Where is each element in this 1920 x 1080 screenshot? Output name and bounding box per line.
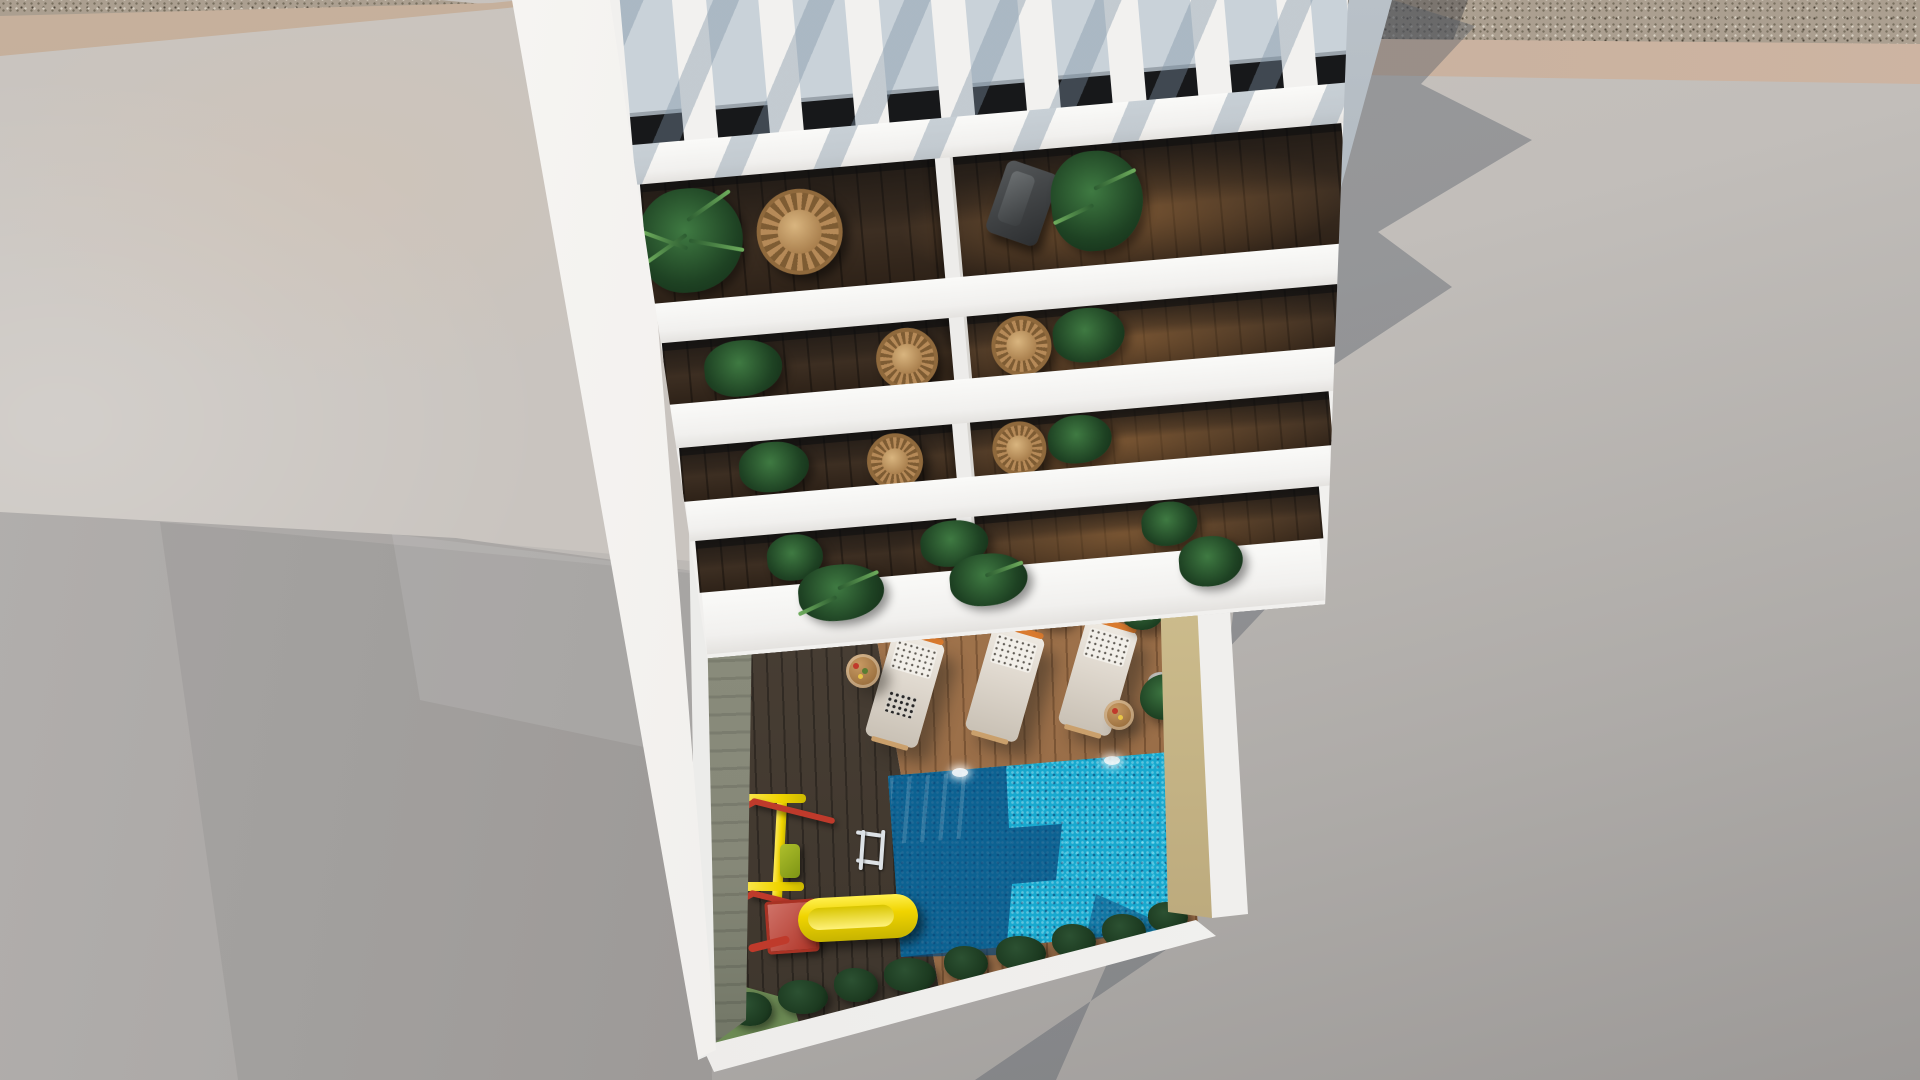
- gray-deck-chair: [984, 159, 1060, 248]
- rattan-egg-chair: [989, 313, 1054, 378]
- balcony-plant: [1047, 147, 1147, 255]
- pool-light-glint: [1104, 756, 1120, 765]
- balcony-divider: [952, 423, 975, 478]
- balcony-divider: [935, 157, 963, 278]
- hedge-bush: [778, 980, 828, 1014]
- pool-light-glint: [952, 768, 968, 777]
- balcony-palm: [640, 184, 747, 297]
- side-table: [1104, 700, 1134, 730]
- balcony-divider: [949, 317, 972, 380]
- building: [609, 0, 1408, 662]
- rattan-egg-chair: [753, 185, 846, 278]
- slide: [797, 893, 919, 943]
- pool-ladder: [856, 830, 896, 874]
- side-table: [846, 654, 880, 688]
- aerial-building-render: [0, 0, 1920, 1080]
- hedge-bush: [884, 958, 936, 992]
- hedge-bush: [834, 968, 878, 1002]
- swing-seat: [780, 844, 800, 878]
